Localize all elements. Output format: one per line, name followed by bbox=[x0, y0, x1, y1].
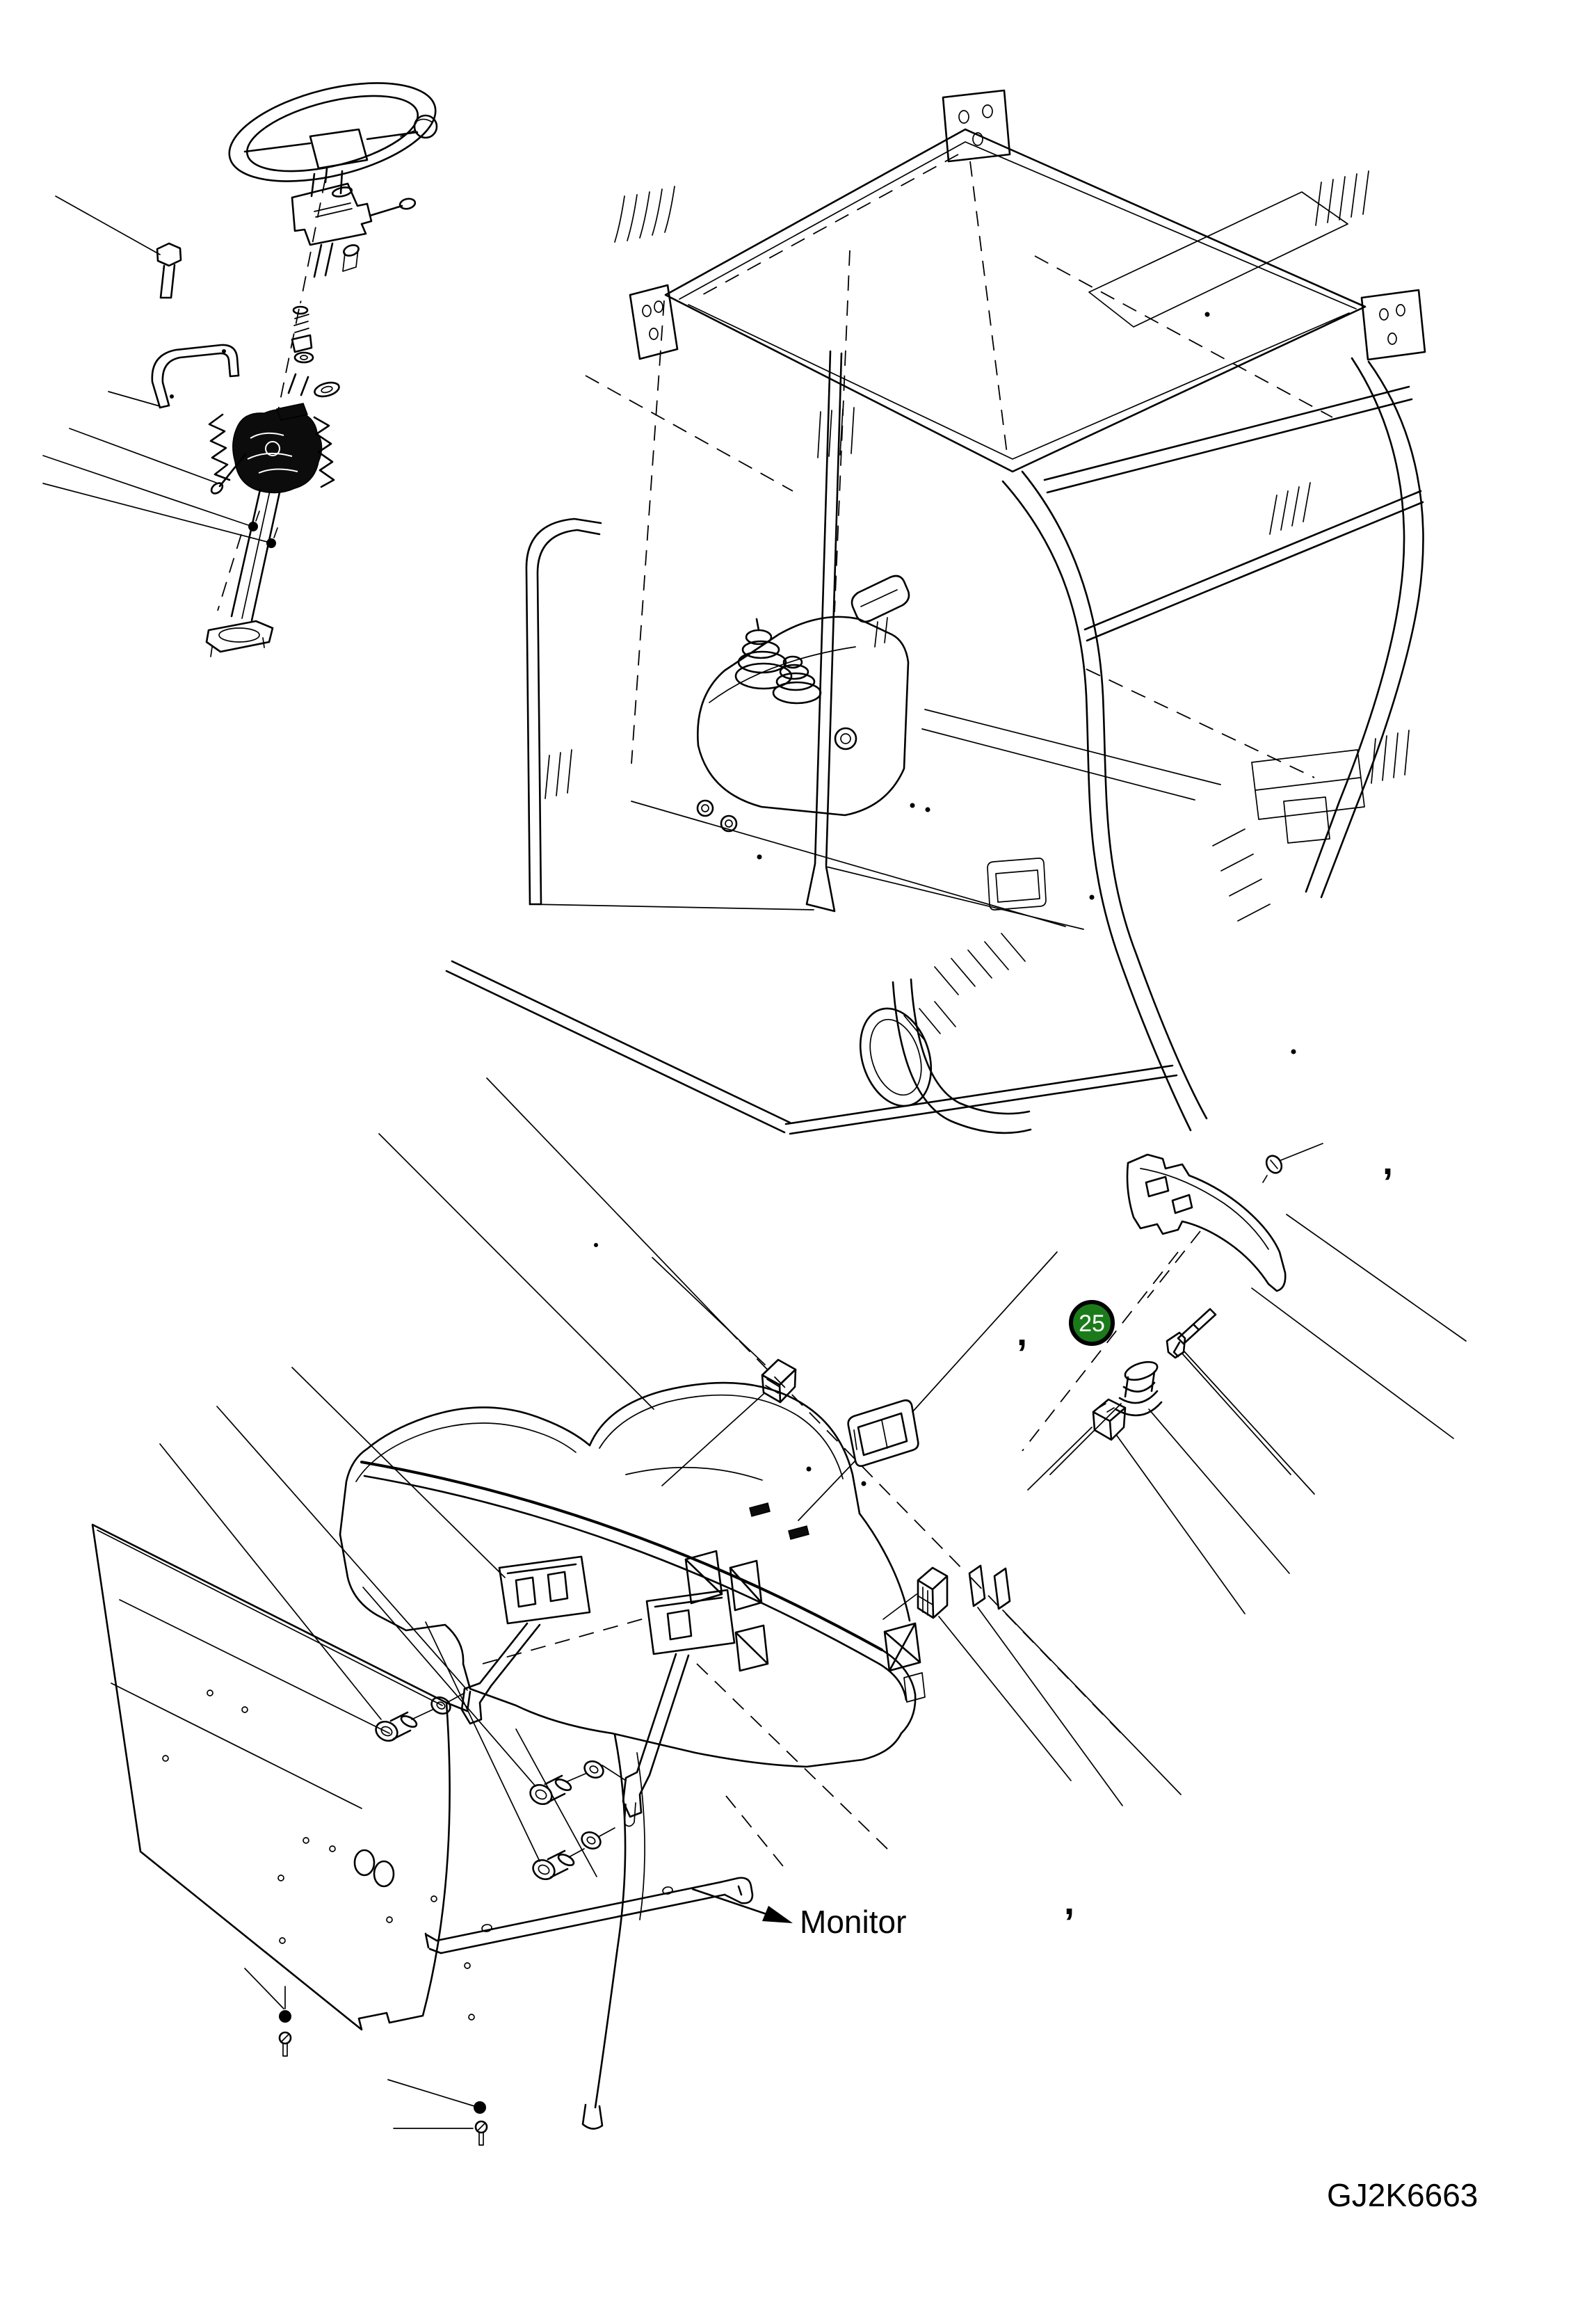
side-cover bbox=[1127, 1143, 1466, 1438]
key-switch bbox=[835, 728, 856, 749]
leader-lines-brackets bbox=[160, 1367, 647, 1877]
bolt-washer-set bbox=[373, 1693, 465, 1744]
frame-holes bbox=[757, 312, 1296, 1054]
column-centerline bbox=[278, 178, 325, 410]
dash-lower-trim bbox=[583, 1735, 625, 2129]
small-switch bbox=[1028, 1399, 1245, 1614]
annotations: 25 Monitor , , , GJ2K6663 bbox=[693, 1141, 1478, 2213]
monitor-strap-bracket bbox=[426, 1878, 752, 1953]
hidden-lines bbox=[586, 154, 1332, 778]
mounting-plate-right bbox=[1362, 290, 1425, 360]
floor-panel bbox=[92, 1525, 487, 2145]
trim-stick bbox=[1174, 1309, 1314, 1494]
callout-number: 25 bbox=[1079, 1310, 1105, 1337]
leader-lines-steering bbox=[43, 196, 267, 542]
combination-switch bbox=[292, 184, 416, 277]
monitor-arrowhead bbox=[762, 1906, 793, 1923]
bracket-arm-left bbox=[462, 1557, 590, 1724]
leader-lines-dash bbox=[379, 1078, 866, 1486]
dashboard-assembly bbox=[340, 1078, 1466, 2129]
steering-knob bbox=[414, 115, 437, 138]
console-handle bbox=[852, 576, 909, 647]
cover-screw bbox=[1263, 1143, 1323, 1182]
mounting-brackets bbox=[160, 1367, 752, 1953]
blank-plates bbox=[969, 1566, 1181, 1806]
comma-mark: , bbox=[1064, 1881, 1074, 1922]
bracket-arm-right bbox=[623, 1590, 734, 1827]
panel-screw-set bbox=[245, 1968, 291, 2056]
bellows-left bbox=[209, 415, 229, 480]
dash-housing bbox=[340, 1383, 925, 2128]
diagram-canvas: 25 Monitor , , , GJ2K6663 bbox=[0, 0, 1596, 2312]
mounting-plate-top bbox=[943, 90, 1010, 161]
steering-wheel bbox=[220, 65, 446, 200]
switch-stalk bbox=[370, 206, 402, 216]
comma-mark: , bbox=[1383, 1141, 1393, 1182]
vent-bezel bbox=[798, 1252, 1057, 1520]
steering-column-assembly bbox=[43, 65, 445, 657]
dash-cutout bbox=[736, 1625, 768, 1671]
monitor-text: Monitor bbox=[800, 1904, 906, 1940]
dash-cutout bbox=[885, 1623, 920, 1671]
mounting-plate-left bbox=[630, 285, 677, 359]
washer bbox=[313, 380, 340, 399]
panel-screw-set bbox=[388, 2080, 487, 2145]
hidden-axis-lines bbox=[697, 1231, 1200, 1870]
control-console bbox=[698, 576, 1364, 910]
hatch-marks bbox=[545, 171, 1409, 1041]
connector-block bbox=[883, 1568, 1071, 1781]
panel-slot bbox=[789, 1526, 809, 1539]
drawing-code: GJ2K6663 bbox=[1327, 2177, 1478, 2213]
cab-frame bbox=[446, 90, 1425, 1134]
column-bolt bbox=[157, 243, 181, 298]
clip-bracket bbox=[1167, 1333, 1291, 1475]
washer-stack bbox=[292, 307, 341, 399]
comma-mark: , bbox=[1017, 1312, 1027, 1354]
parts-diagram-page: 25 Monitor , , , GJ2K6663 bbox=[0, 0, 1596, 2312]
bolt-washer-set bbox=[530, 1828, 615, 1883]
callout-25[interactable]: 25 bbox=[1071, 1302, 1113, 1344]
monitor-label: Monitor bbox=[693, 1889, 906, 1940]
joystick-boot-left bbox=[736, 619, 791, 689]
grommet-cap bbox=[1050, 1358, 1289, 1573]
joystick-boot-right bbox=[773, 657, 821, 703]
panel-slot bbox=[750, 1503, 770, 1516]
roof-frame bbox=[666, 129, 1365, 472]
column-base-plate bbox=[207, 621, 273, 652]
bolt-washer-set bbox=[527, 1758, 626, 1808]
u-bracket bbox=[152, 345, 239, 408]
panel-holes bbox=[163, 1690, 474, 2020]
pillars bbox=[526, 300, 1424, 1130]
